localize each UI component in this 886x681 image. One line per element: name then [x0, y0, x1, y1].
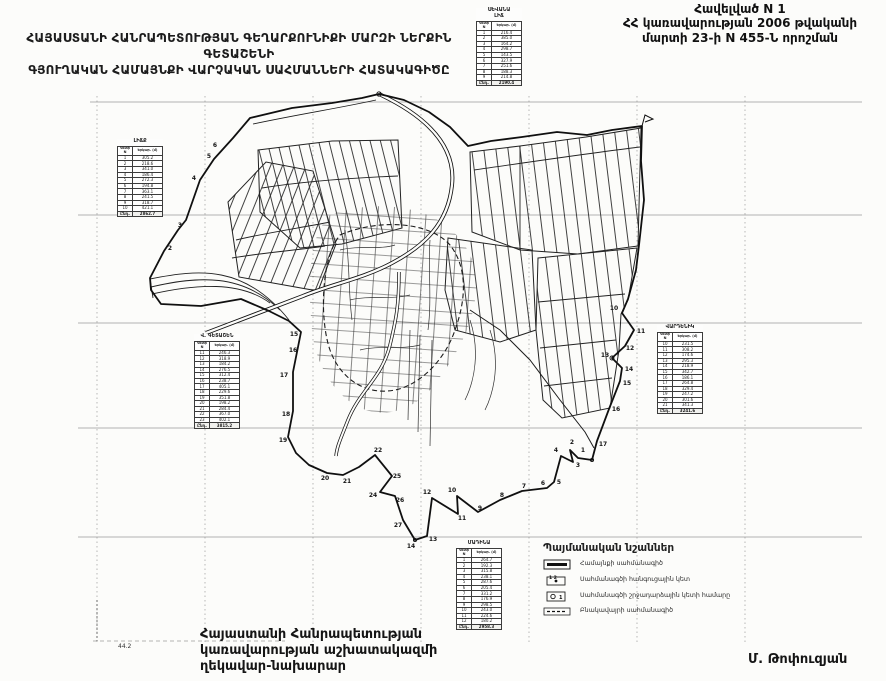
boundary-point-number: 7: [522, 483, 526, 490]
boundary-point-number: 10: [610, 305, 618, 312]
boundary-point-number: 27: [394, 522, 402, 529]
map-title-line1: ՀԱՅԱՍՏԱՆԻ ՀԱՆՐԱՊԵՏՈՒԹՅԱՆ ԳԵՂԱՐՔՈՒՆԻՔԻ ՄԱ…: [6, 30, 472, 62]
boundary-point-number: 24: [369, 492, 377, 499]
legend-item-label: Սահմանագծի հանգուցային կետ: [580, 577, 690, 584]
boundary-point-number: 17: [280, 372, 288, 379]
legend-item-turn-point: 1 Սահմանագծի շրջադարձային կետի համարը: [543, 590, 775, 602]
boundary-point-number: 3: [178, 222, 182, 229]
legend: Պայմանական նշաններ Համայնքի սահմանագիծ 1…: [543, 542, 775, 621]
scale-mark: 44.2: [118, 643, 131, 650]
boundary-point-number: 14: [407, 543, 415, 550]
legend-title: Պայմանական նշաններ: [543, 542, 775, 554]
boundary-point-number: 15: [623, 380, 631, 387]
boundary-point-number: 19: [279, 437, 287, 444]
boundary-point-number: 20: [321, 475, 329, 482]
boundary-point-number: 4: [554, 447, 558, 454]
signature-line3: ղեկավար-նախարար: [200, 659, 437, 675]
boundary-point-number: 26: [396, 497, 404, 504]
boundary-point-number: 11: [458, 515, 466, 522]
boundary-point-number: 22: [374, 447, 382, 454]
boundary-point-number: 11: [637, 328, 645, 335]
boundary-point-number: 1: [581, 447, 585, 454]
signature-line2: կառավարության աշխատակազմի: [200, 643, 437, 659]
scanned-map-page: 1234567891011121314272624252221201918171…: [0, 0, 886, 681]
boundary-node-point-icon: 1 2: [543, 574, 573, 586]
signatory-name: Մ. Թոփուզյան: [748, 652, 847, 667]
legend-item-node-point: 1 2 Սահմանագծի հանգուցային կետ: [543, 574, 775, 586]
boundary-point-number: 17: [599, 441, 607, 448]
boundary-point-number: 2: [168, 245, 172, 252]
boundary-point-number: 5: [207, 153, 211, 160]
boundary-turn-point-icon: 1: [543, 590, 573, 602]
map-title: ՀԱՅԱՍՏԱՆԻ ՀԱՆՐԱՊԵՏՈՒԹՅԱՆ ԳԵՂԱՐՔՈՒՆԻՔԻ ՄԱ…: [6, 30, 472, 79]
boundary-point-number: 2: [570, 439, 574, 446]
boundary-point-number: 14: [625, 366, 633, 373]
boundary-point-number: 3: [576, 462, 580, 469]
map-title-line2: ԳՅՈՒՂԱԿԱՆ ՀԱՄԱՅՆՔԻ ՎԱՐՉԱԿԱՆ ՍԱՀՄԱՆՆԵՐԻ Հ…: [6, 62, 472, 78]
turn-point-digit: 1: [559, 595, 563, 601]
legend-item-label: Համայնքի սահմանագիծ: [580, 561, 663, 568]
annex-line1: Հավելված N 1: [594, 2, 886, 16]
boundary-point-number: 16: [612, 406, 620, 413]
boundary-point-number: 12: [626, 345, 634, 352]
boundary-point-number: 12: [423, 489, 431, 496]
legend-item-community-boundary: Համայնքի սահմանագիծ: [543, 559, 775, 570]
boundary-point-number: 9: [478, 505, 482, 512]
legend-item-settlement-boundary: Բնակավայրի սահմանագիծ: [543, 606, 775, 617]
boundary-point-number: 8: [500, 492, 504, 499]
boundary-point-number: 13: [429, 536, 437, 543]
boundary-point-number: 10: [448, 487, 456, 494]
annex-note: Հավելված N 1 ՀՀ կառավարության 2006 թվակա…: [594, 2, 886, 45]
boundary-point-number: 6: [541, 480, 545, 487]
node-point-digits: 1 2: [549, 575, 557, 581]
boundary-point-number: 5: [557, 479, 561, 486]
signature-line1: Հայաստանի Հանրապետության: [200, 627, 437, 643]
settlement-boundary-line-icon: [543, 606, 573, 617]
legend-item-label: Սահմանագծի շրջադարձային կետի համարը: [580, 593, 730, 600]
boundary-point-number: 25: [393, 473, 401, 480]
annex-line3: մարտի 23-ի N 455-Ն որոշման: [594, 31, 886, 45]
signature-block: Հայաստանի Հանրապետության կառավարության ա…: [200, 627, 437, 675]
legend-item-label: Բնակավայրի սահմանագիծ: [580, 608, 673, 615]
boundary-point-number: 13: [601, 352, 609, 359]
boundary-point-number: 6: [213, 142, 217, 149]
boundary-point-number: 15: [290, 331, 298, 338]
boundary-point-number: 16: [289, 347, 297, 354]
boundary-point-number: 4: [192, 175, 196, 182]
annex-line2: ՀՀ կառավարության 2006 թվականի: [594, 16, 886, 30]
boundary-point-number: 18: [282, 411, 290, 418]
boundary-point-number: 21: [343, 478, 351, 485]
community-boundary-line-icon: [543, 559, 573, 570]
